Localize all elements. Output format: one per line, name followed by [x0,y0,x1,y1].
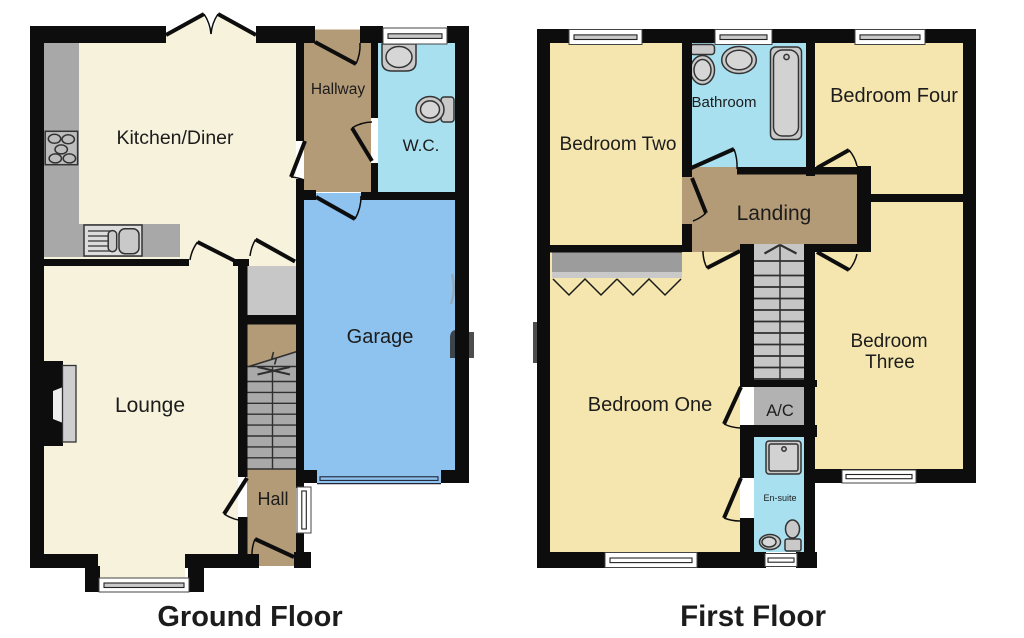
svg-text:Landing: Landing [737,202,812,225]
svg-text:Ground Floor: Ground Floor [157,601,342,633]
svg-text:Lounge: Lounge [115,394,185,417]
svg-text:W.C.: W.C. [403,136,440,155]
svg-text:Bedroom Four: Bedroom Four [830,85,958,107]
svg-text:Bedroom: Bedroom [850,331,927,352]
svg-text:A/C: A/C [766,402,794,420]
svg-text:Hallway: Hallway [311,81,366,98]
svg-text:Bedroom Two: Bedroom Two [560,134,677,155]
svg-text:Three: Three [865,352,915,373]
svg-text:Garage: Garage [347,326,414,348]
svg-text:Bedroom One: Bedroom One [588,394,713,416]
svg-text:En-suite: En-suite [763,493,796,503]
svg-text:Bathroom: Bathroom [691,94,756,111]
svg-text:Hall: Hall [257,489,288,509]
svg-text:Kitchen/Diner: Kitchen/Diner [116,127,234,149]
svg-text:First Floor: First Floor [680,600,826,633]
